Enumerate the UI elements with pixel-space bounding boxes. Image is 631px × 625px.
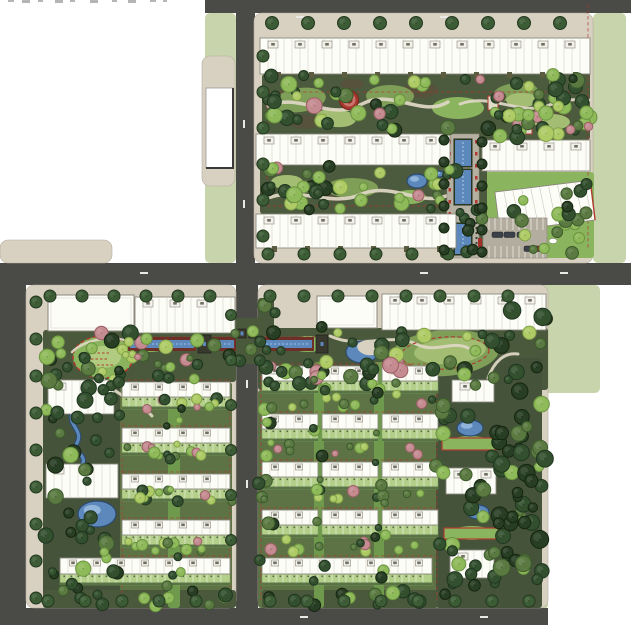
tree-canopy — [418, 195, 420, 197]
garden-plots — [71, 576, 73, 578]
garden-plots — [162, 576, 164, 578]
tree-canopy — [167, 456, 171, 460]
tree-canopy — [126, 539, 129, 542]
tree — [504, 375, 512, 383]
tree — [191, 334, 204, 347]
tree-canopy — [195, 405, 198, 408]
building-slab — [547, 145, 551, 148]
street-tree — [257, 50, 269, 62]
tree — [525, 474, 538, 487]
tree — [81, 362, 95, 376]
garden-plots — [414, 431, 416, 433]
lane-marking — [246, 480, 248, 488]
tree-canopy — [514, 126, 518, 130]
tree — [335, 203, 345, 213]
garden-plots — [357, 576, 359, 578]
tree — [477, 159, 487, 169]
tree-canopy — [339, 253, 341, 255]
building-slab — [294, 219, 298, 222]
tree-canopy — [455, 170, 457, 172]
building-slab — [273, 514, 277, 517]
tree — [381, 499, 388, 506]
tree — [174, 553, 182, 561]
tree-canopy — [179, 406, 182, 409]
garden-plots — [414, 479, 416, 481]
building-slab — [429, 219, 433, 222]
tree-canopy — [392, 592, 394, 594]
tree — [529, 245, 537, 253]
tree-canopy — [81, 525, 83, 527]
tree — [447, 572, 463, 588]
tree-canopy — [586, 183, 588, 185]
garden-plots — [414, 527, 416, 529]
garden-plots — [224, 537, 226, 539]
tree — [122, 352, 129, 359]
pergola — [442, 438, 496, 450]
garden-plots — [280, 479, 282, 481]
tree-canopy — [472, 249, 474, 251]
garden-plots — [154, 399, 156, 401]
tree-canopy — [509, 115, 511, 117]
tree — [552, 227, 563, 238]
building-slab — [181, 432, 185, 435]
tree — [300, 400, 308, 408]
tree — [135, 493, 146, 504]
garden-plots — [386, 527, 388, 529]
building-slab — [167, 562, 171, 565]
tree — [372, 387, 383, 398]
tree — [381, 530, 391, 540]
tree-canopy — [153, 452, 155, 454]
tree-canopy — [116, 412, 121, 417]
tree-canopy — [528, 114, 530, 116]
tree — [395, 193, 404, 202]
tree-canopy — [143, 597, 145, 599]
tree-canopy — [349, 339, 353, 343]
tree-canopy — [442, 433, 444, 435]
tree-canopy — [500, 345, 502, 347]
tree — [368, 364, 379, 375]
building-slab — [322, 510, 378, 525]
tree-canopy — [479, 331, 483, 335]
tree — [532, 574, 543, 585]
tree — [322, 117, 334, 129]
building-slab — [447, 299, 451, 302]
tree — [339, 399, 349, 409]
tree — [64, 508, 74, 518]
tree — [348, 485, 359, 496]
tree-canopy — [35, 449, 37, 451]
tree-canopy — [530, 246, 534, 250]
tree — [231, 329, 240, 338]
tree-canopy — [188, 356, 191, 359]
tree-canopy — [45, 535, 47, 537]
tree — [293, 115, 302, 124]
tree-canopy — [265, 480, 267, 482]
tree-canopy — [230, 359, 232, 361]
tree-canopy — [557, 133, 559, 135]
tree — [104, 333, 119, 348]
tree-canopy — [318, 477, 321, 480]
street-tree — [302, 17, 315, 30]
garden-plots — [224, 445, 226, 447]
tree — [268, 440, 274, 446]
building-slab — [493, 145, 497, 148]
tree — [383, 104, 398, 119]
tree — [318, 371, 326, 379]
tree — [547, 69, 560, 82]
tree — [393, 390, 401, 398]
tree — [317, 477, 323, 483]
garden-plots — [273, 576, 275, 578]
garden-plots — [420, 576, 422, 578]
tree-canopy — [513, 210, 515, 212]
tree — [276, 366, 287, 377]
building-slab — [71, 562, 75, 565]
tree — [535, 338, 546, 349]
building-slab — [119, 562, 123, 565]
tree-canopy — [362, 444, 365, 447]
building-slab — [382, 414, 438, 429]
street-tree — [518, 17, 531, 30]
tree-canopy — [77, 417, 79, 419]
tree-canopy — [479, 205, 484, 210]
tree — [519, 196, 528, 205]
garden-plots — [287, 383, 289, 385]
tree-canopy — [96, 375, 100, 379]
tree-canopy — [90, 516, 92, 518]
garden-plots — [294, 431, 296, 433]
building-slab — [482, 140, 590, 171]
tree — [115, 366, 124, 375]
tree-canopy — [333, 394, 337, 398]
building-slab — [135, 297, 235, 333]
garden-plots — [168, 445, 170, 447]
tree-canopy — [315, 80, 319, 84]
tree-canopy — [423, 335, 425, 337]
tree — [76, 531, 88, 543]
street-tree — [502, 290, 514, 302]
tree — [503, 109, 516, 122]
tree-canopy — [520, 452, 522, 454]
tree — [395, 546, 403, 554]
tree-canopy — [84, 600, 86, 602]
tree-canopy — [523, 423, 528, 428]
tree-canopy — [239, 360, 241, 362]
garden-plots — [407, 479, 409, 481]
pavilion — [321, 342, 324, 346]
tree-canopy — [270, 548, 272, 550]
tree — [428, 396, 435, 403]
tree-canopy — [493, 377, 495, 379]
building-slab — [393, 514, 397, 517]
tree-canopy — [566, 193, 568, 195]
tree-canopy — [388, 125, 392, 129]
tree — [332, 393, 340, 401]
street-tree — [172, 290, 184, 302]
tree — [375, 524, 382, 531]
building-slab — [271, 43, 275, 46]
tree — [39, 349, 54, 364]
street-tree — [226, 310, 237, 321]
tree-canopy — [473, 295, 475, 297]
garden-plots — [407, 383, 409, 385]
tree — [519, 229, 531, 241]
tree-canopy — [81, 295, 83, 297]
tree — [538, 126, 554, 142]
tree — [444, 356, 457, 369]
tree-canopy — [252, 330, 254, 332]
building-slab — [402, 139, 406, 142]
tree-canopy — [48, 379, 50, 381]
garden-plots — [224, 491, 226, 493]
building-slab — [393, 418, 397, 421]
street-tree — [140, 290, 152, 302]
tree — [534, 396, 550, 412]
tree-canopy — [155, 362, 158, 365]
street-tree — [108, 290, 120, 302]
edge-artifact — [150, 0, 156, 2]
tree — [539, 106, 553, 120]
tree-canopy — [273, 101, 275, 103]
building-slab — [215, 562, 219, 565]
garden-plots — [64, 576, 66, 578]
tree-canopy — [213, 344, 215, 346]
tree-canopy — [371, 295, 373, 297]
tree — [152, 370, 163, 381]
building-slab — [143, 562, 147, 565]
tree-canopy — [554, 97, 556, 99]
building-slab — [262, 462, 318, 477]
building-slab — [541, 43, 545, 46]
tree-canopy — [380, 484, 382, 486]
tree-canopy — [393, 380, 397, 384]
building-slab — [325, 43, 329, 46]
tree-canopy — [372, 534, 376, 538]
tree — [494, 111, 502, 119]
tree-canopy — [125, 445, 128, 448]
tree-canopy — [46, 356, 48, 358]
parking — [483, 218, 547, 258]
tree-canopy — [414, 451, 418, 455]
garden-plots — [161, 445, 163, 447]
tree-canopy — [358, 540, 361, 543]
tree — [172, 496, 183, 507]
garden-plots — [382, 477, 438, 489]
street-tree — [446, 17, 459, 30]
tree-canopy — [371, 76, 375, 80]
tree-canopy — [267, 253, 269, 255]
tree — [114, 410, 124, 420]
garden-plots — [382, 391, 438, 394]
tree-canopy — [511, 472, 513, 474]
tree-canopy — [508, 450, 510, 452]
tree — [55, 428, 65, 438]
tree — [523, 109, 534, 120]
tree-canopy — [566, 206, 568, 208]
tree-canopy — [578, 237, 580, 239]
tree-canopy — [536, 578, 538, 580]
building-slab — [322, 510, 378, 525]
garden-plots — [287, 431, 289, 433]
tree-canopy — [141, 544, 143, 546]
tree — [107, 565, 120, 578]
tree — [93, 413, 103, 423]
tree — [187, 355, 193, 361]
standalone-building — [206, 88, 233, 168]
tree-canopy — [559, 22, 561, 24]
garden-plots — [262, 583, 432, 586]
street-tree — [301, 595, 313, 607]
tree — [311, 376, 318, 383]
garden-plots — [392, 576, 394, 578]
tree-canopy — [333, 451, 336, 454]
tree-canopy — [46, 409, 48, 411]
street-tree — [298, 290, 310, 302]
tree — [245, 343, 257, 355]
tree-canopy — [87, 368, 89, 370]
garden-plots — [399, 576, 401, 578]
garden-plots — [421, 479, 423, 481]
tree — [270, 381, 280, 391]
tree-canopy — [102, 389, 104, 391]
tree-canopy — [273, 332, 275, 334]
tree-canopy — [170, 572, 174, 576]
tree-canopy — [418, 491, 421, 494]
tree-canopy — [441, 159, 446, 164]
tree — [41, 404, 52, 415]
garden-plots — [361, 527, 363, 529]
tree — [165, 454, 175, 464]
garden-plots — [211, 576, 213, 578]
tree — [395, 333, 409, 347]
building-slab — [333, 370, 337, 373]
building-slab — [393, 466, 397, 469]
tree — [302, 169, 311, 178]
garden-plots — [400, 479, 402, 481]
tree — [513, 444, 529, 460]
tree — [47, 457, 63, 473]
tree — [440, 120, 455, 135]
street-tree — [366, 290, 378, 302]
tree-canopy — [479, 161, 484, 166]
tree-canopy — [404, 491, 407, 494]
tree — [387, 124, 397, 134]
tree-canopy — [498, 441, 500, 443]
tree-canopy — [555, 88, 557, 90]
tree-canopy — [434, 192, 438, 196]
building-slab — [528, 299, 532, 302]
tree — [534, 89, 544, 99]
tree-canopy — [88, 387, 90, 389]
green-verge — [593, 13, 626, 263]
lane-marking — [140, 272, 148, 274]
garden-plots — [400, 527, 402, 529]
tree-canopy — [472, 382, 477, 387]
street-tree — [30, 333, 42, 345]
tree-canopy — [541, 403, 543, 405]
garden-plots — [413, 576, 415, 578]
garden-plots — [386, 479, 388, 481]
tree-canopy — [264, 347, 268, 351]
tree — [71, 411, 84, 424]
garden-plots — [343, 576, 345, 578]
tree-canopy — [164, 399, 166, 401]
building-slab — [429, 139, 433, 142]
tree-canopy — [375, 103, 377, 105]
building-slab — [133, 478, 137, 481]
tree-canopy — [113, 570, 115, 572]
garden-plots — [203, 537, 205, 539]
tree-canopy — [314, 518, 318, 522]
building-slab — [122, 428, 230, 443]
building-slab — [348, 139, 352, 142]
tree-canopy — [520, 197, 524, 201]
tree — [288, 547, 298, 557]
tree — [98, 384, 108, 394]
tree — [125, 538, 132, 545]
building-slab — [273, 466, 277, 469]
sculpture — [549, 239, 557, 244]
garden-plots — [382, 381, 438, 393]
tree-canopy — [191, 376, 195, 380]
tree-canopy — [396, 547, 400, 551]
tree-canopy — [585, 212, 587, 214]
building-slab — [333, 514, 337, 517]
building-slab — [417, 514, 421, 517]
building-slab — [157, 386, 161, 389]
building-slab — [375, 139, 379, 142]
tree-canopy — [56, 412, 58, 414]
tree-canopy — [144, 443, 149, 448]
lane-marking — [420, 272, 428, 274]
building-slab — [487, 43, 491, 46]
tree — [548, 82, 563, 97]
tree — [253, 477, 265, 489]
tree — [166, 362, 175, 371]
tree-canopy — [188, 448, 192, 452]
edge-artifact — [70, 0, 75, 2]
tree-canopy — [542, 316, 544, 318]
tree-canopy — [390, 111, 392, 113]
building-slab — [382, 510, 438, 525]
building-slab — [133, 524, 137, 527]
building-slab — [348, 219, 352, 222]
master-plan-svg — [0, 0, 631, 625]
tree-canopy — [324, 187, 326, 189]
garden-plots — [294, 576, 296, 578]
tree — [200, 491, 210, 501]
tree-canopy — [167, 364, 171, 368]
building-slab — [352, 43, 356, 46]
garden-plots — [218, 576, 220, 578]
tree-canopy — [430, 397, 433, 400]
tree — [518, 516, 531, 529]
tree-canopy — [505, 377, 509, 381]
tree-canopy — [265, 378, 269, 382]
lane-marking — [243, 120, 245, 128]
tree — [523, 326, 536, 339]
tree-canopy — [399, 99, 401, 101]
tree — [417, 328, 432, 343]
tree-canopy — [418, 400, 422, 404]
building-slab — [357, 418, 361, 421]
tree-canopy — [99, 369, 103, 373]
building-slab — [382, 510, 438, 525]
garden-plots — [386, 383, 388, 385]
tree — [77, 392, 93, 408]
garden-plots — [133, 399, 135, 401]
